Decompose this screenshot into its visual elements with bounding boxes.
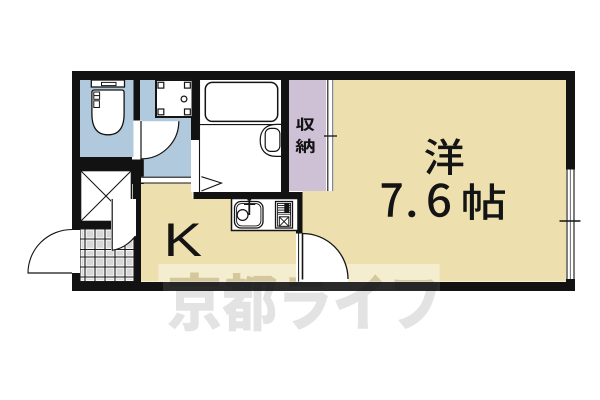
- svg-text:K: K: [164, 214, 203, 267]
